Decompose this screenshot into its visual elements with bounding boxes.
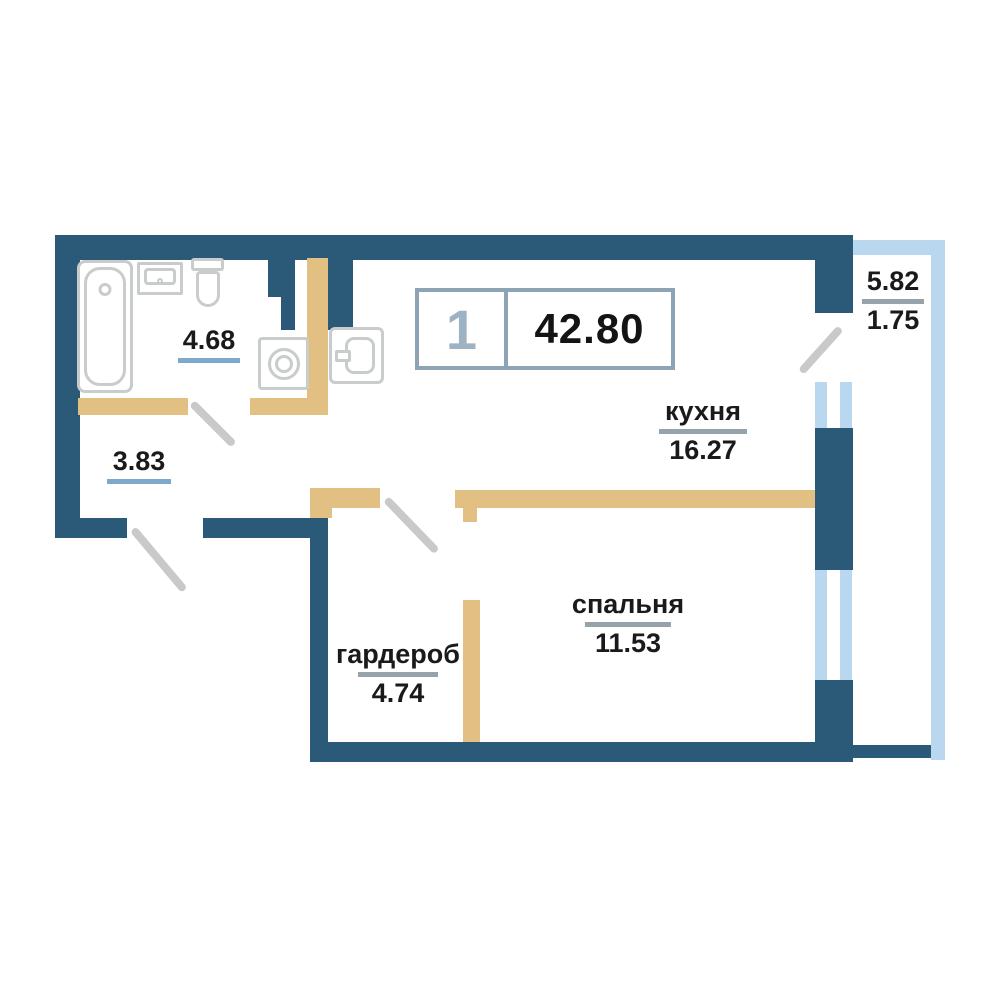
bathtub-icon [77, 260, 133, 393]
wall-pier-a [268, 260, 295, 297]
door-swing-balcony-icon [798, 325, 843, 374]
bathroom-underline [178, 358, 240, 363]
bedroom-name: спальня [572, 590, 684, 619]
bathroom-label: 4.68 [178, 326, 240, 365]
total-area: 42.80 [508, 292, 671, 366]
wardrobe-underline [358, 672, 438, 677]
kitchen-name: кухня [665, 397, 741, 426]
bedroom-area: 11.53 [595, 629, 661, 658]
balcony-label: 5.82 1.75 [862, 267, 924, 335]
bedroom-underline [585, 622, 671, 627]
partition-wardrobe-divider [463, 600, 480, 742]
hallway-underline [107, 479, 171, 484]
balcony-area-reduced: 1.75 [867, 306, 920, 335]
partition-kitchen-bedroom-stub [463, 508, 477, 522]
washing-machine-icon [258, 337, 309, 390]
bedroom-label: спальня 11.53 [572, 590, 684, 658]
wall-wardrobe-left [310, 538, 328, 762]
partition-bedroom-top-stub [310, 508, 332, 518]
wall-hall-bottom-left [55, 518, 127, 538]
balcony-fraction-line [862, 299, 924, 304]
hallway-label: 3.83 [107, 447, 171, 486]
partition-bathroom-right [307, 258, 328, 415]
balcony-area-total: 5.82 [867, 267, 920, 296]
wall-bottom [310, 742, 853, 762]
partition-bedroom-top-left [310, 488, 380, 508]
wardrobe-name: гардероб [336, 640, 460, 669]
floor-plan: 4.68 3.83 кухня 16.27 спальня 11.53 гард… [0, 0, 1000, 1000]
wall-right-middle [815, 428, 853, 570]
wall-top [55, 235, 853, 260]
hallway-area: 3.83 [113, 447, 166, 476]
partition-kitchen-bedroom [455, 490, 815, 508]
wall-pier-b [328, 260, 353, 330]
kitchen-underline [659, 429, 747, 434]
bathroom-sink-icon [137, 262, 183, 295]
wall-right-bottom [815, 680, 853, 762]
wardrobe-label: гардероб 4.74 [336, 640, 460, 708]
balcony-glazing-right [931, 240, 945, 760]
partition-bathroom-bottom-left [78, 398, 188, 415]
wall-pier-a-step [281, 297, 295, 330]
rooms-count: 1 [419, 292, 508, 366]
wall-hall-bottom-right [203, 518, 328, 538]
kitchen-label: кухня 16.27 [659, 397, 747, 465]
bathroom-area: 4.68 [183, 326, 236, 355]
door-swing-bedroom-icon [383, 496, 439, 554]
door-swing-entrance-icon [130, 526, 188, 592]
wall-balcony-bottom [852, 745, 931, 758]
wardrobe-area: 4.74 [372, 679, 425, 708]
wall-right-corner-block [815, 260, 853, 313]
apartment-type-badge: 1 42.80 [415, 288, 675, 370]
door-swing-bathroom-icon [189, 400, 236, 447]
kitchen-area: 16.27 [669, 436, 737, 465]
kitchen-sink-icon [329, 327, 384, 384]
